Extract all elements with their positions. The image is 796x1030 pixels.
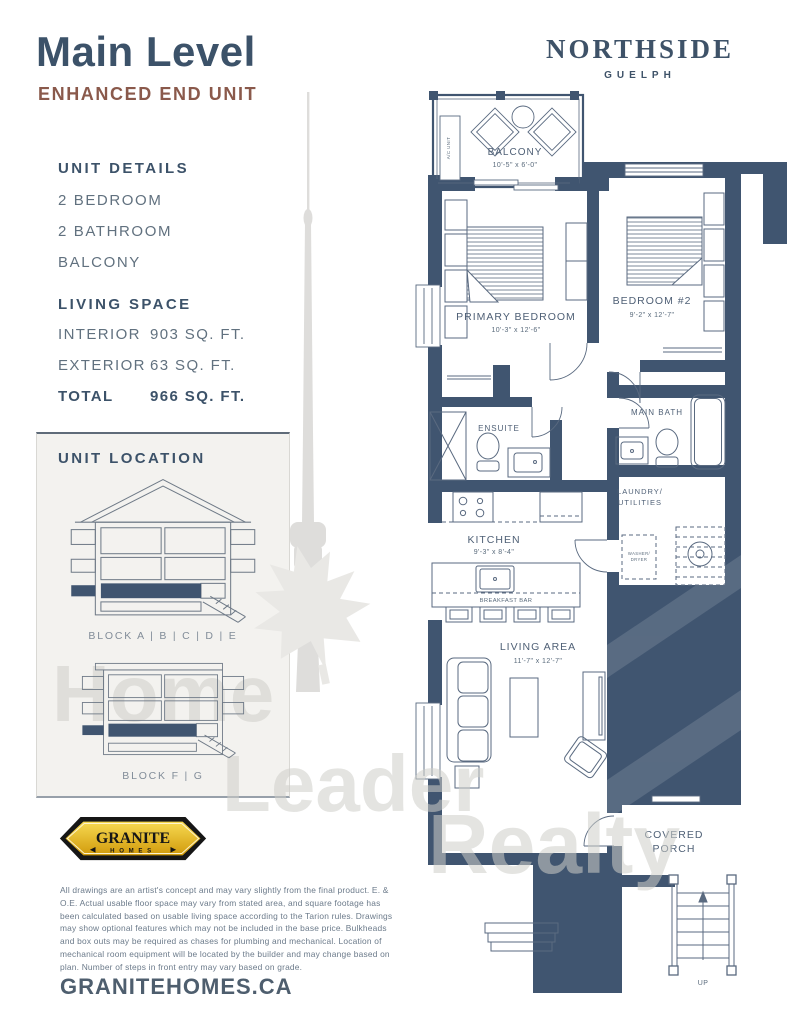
bedroom2-furniture [627,193,724,352]
brand-name: NORTHSIDE [520,34,760,65]
stairs-up-label: UP [698,980,709,987]
room-label-kitchen: KITCHEN [467,534,520,546]
room-dims-balcony: 10'-5" x 6'-0" [493,162,538,169]
unit-detail-item: 2 BEDROOM [58,185,189,216]
block-f-label: BLOCK F | G [36,770,290,782]
unit-location-section: UNIT LOCATION BLOCK A | B | C | D | E [36,432,290,798]
unit-detail-item: BALCONY [58,247,189,278]
unit-details-section: UNIT DETAILS 2 BEDROOM 2 BATHROOM BALCON… [58,160,189,278]
room-label-main-bath: MAIN BATH [631,408,683,417]
unit-detail-item: 2 BATHROOM [58,216,189,247]
room-label-laundry: LAUNDRY/ [617,487,663,496]
balcony-area [429,91,583,190]
dryer-label: DRYER [631,557,648,562]
brand-logo: NORTHSIDE GUELPH [520,34,760,81]
living-space-row: EXTERIOR 63 SQ. FT. [58,350,318,381]
living-space-heading: LIVING SPACE [58,296,318,313]
row-label: EXTERIOR [58,350,150,381]
page-subtitle: ENHANCED END UNIT [38,84,257,105]
room-label-bedroom2: BEDROOM #2 [613,295,692,307]
washer-label: WASHER/ [628,551,651,556]
floor-plan: BALCONY 10'-5" x 6'-0" A/C UNIT PRIMARY … [400,80,796,1025]
block-a-label: BLOCK A | B | C | D | E [36,630,290,642]
room-label-covered: COVERED [645,829,704,841]
floorplan-sheet: Home Leader Realty Main Level ENHANCED E… [0,0,796,1030]
logo-sub: HOMES [110,848,156,855]
living-space-section: LIVING SPACE INTERIOR 903 SQ. FT. EXTERI… [58,296,318,412]
unit-details-heading: UNIT DETAILS [58,160,189,177]
ac-unit-label: A/C UNIT [446,137,451,159]
row-label: TOTAL [58,381,150,412]
room-dims-primary-bedroom: 10'-3" x 12'-6" [491,327,540,334]
row-value: 966 SQ. FT. [150,381,245,412]
room-label-ensuite: ENSUITE [478,424,520,433]
block-a-cross-section-diagram [50,474,276,626]
brand-city: GUELPH [520,70,760,81]
page-title: Main Level [36,28,256,76]
room-dims-bedroom2: 9'-2" x 12'-7" [630,312,675,319]
block-f-cross-section-diagram [50,652,276,766]
unit-location-heading: UNIT LOCATION [58,450,206,467]
main-bath-fixtures [616,395,725,469]
room-label-balcony: BALCONY [488,147,543,158]
stairs [669,875,736,975]
living-space-total-row: TOTAL 966 SQ. FT. [58,381,318,412]
room-dims-kitchen: 9'-3" x 8'-4" [474,549,515,556]
primary-bedroom-furniture [445,200,587,379]
granite-homes-logo: GRANITE HOMES [58,812,208,865]
row-label: INTERIOR [58,319,150,350]
logo-name: GRANITE [96,830,170,847]
disclaimer-text: All drawings are an artist's concept and… [60,884,394,973]
breakfast-bar-label: BREAKFAST BAR [480,598,533,604]
website-link[interactable]: GRANITEHOMES.CA [60,974,293,1000]
room-label-primary-bedroom: PRIMARY BEDROOM [456,311,576,323]
living-space-row: INTERIOR 903 SQ. FT. [58,319,318,350]
room-label-living-area: LIVING AREA [500,641,576,653]
room-label-porch: PORCH [653,843,696,855]
row-value: 63 SQ. FT. [150,350,236,381]
room-dims-living-area: 11'-7" x 12'-7" [514,658,563,665]
row-value: 903 SQ. FT. [150,319,245,350]
room-label-utilities: UTILITIES [618,498,662,507]
